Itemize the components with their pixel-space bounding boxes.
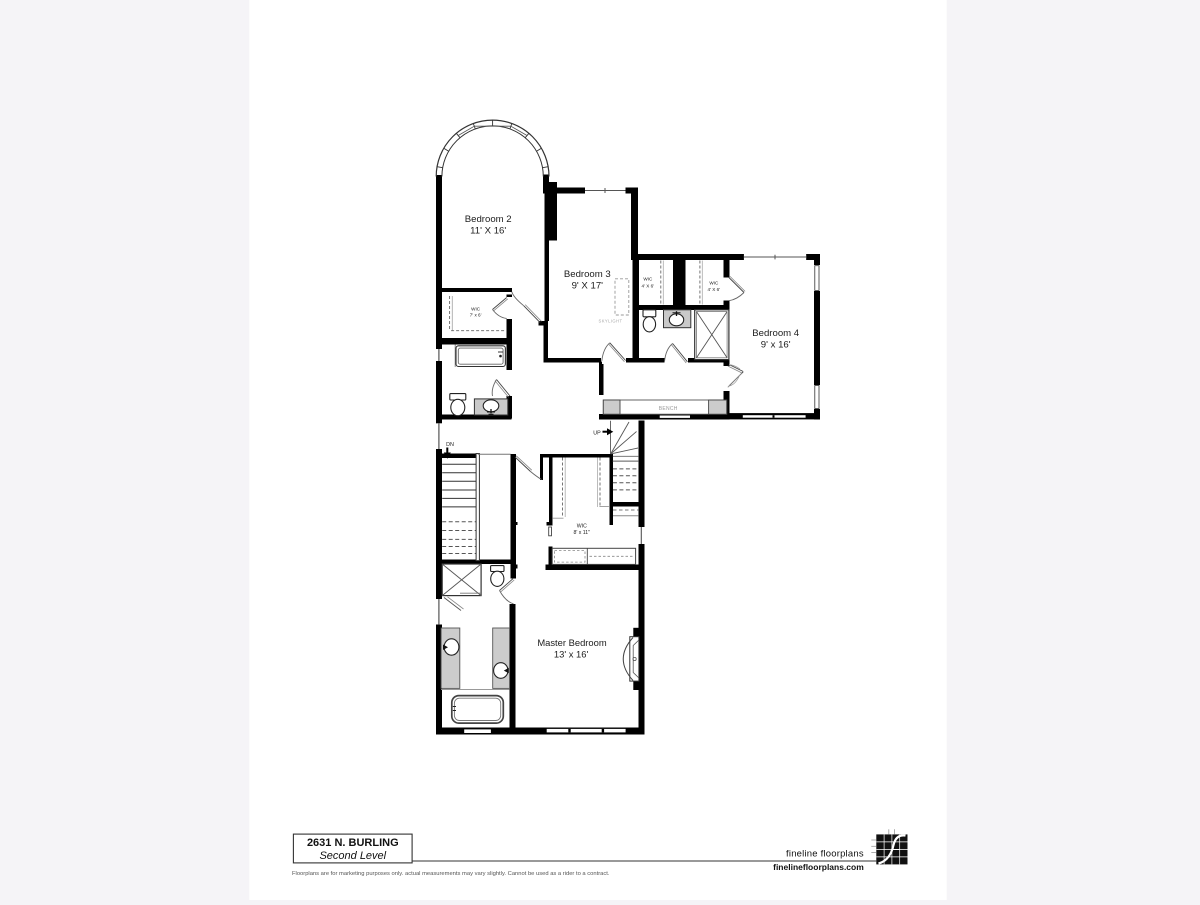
svg-text:11' X 16': 11' X 16'	[470, 225, 506, 236]
svg-text:UP: UP	[593, 430, 601, 436]
svg-text:4' X 6': 4' X 6'	[708, 287, 721, 292]
svg-text:SKYLIGHT: SKYLIGHT	[599, 319, 623, 324]
svg-text:WIC: WIC	[709, 280, 719, 285]
svg-text:9' X 17': 9' X 17'	[572, 280, 604, 291]
svg-text:Bedroom 3: Bedroom 3	[564, 269, 611, 280]
svg-text:Second Level: Second Level	[319, 850, 386, 862]
svg-text:WIC: WIC	[643, 277, 653, 282]
svg-text:WIC: WIC	[577, 524, 587, 530]
svg-text:8' x 11'': 8' x 11''	[573, 530, 590, 536]
svg-text:2631 N. BURLING: 2631 N. BURLING	[307, 837, 399, 849]
svg-text:WIC: WIC	[471, 306, 481, 311]
svg-text:Bedroom 2: Bedroom 2	[465, 214, 512, 225]
svg-text:7' x 6': 7' x 6'	[470, 312, 482, 317]
svg-text:fineline floorplans: fineline floorplans	[786, 849, 864, 860]
svg-text:13' x 16': 13' x 16'	[554, 649, 589, 660]
svg-text:finelinefloorplans.com: finelinefloorplans.com	[773, 862, 864, 872]
svg-text:Master Bedroom: Master Bedroom	[537, 637, 606, 648]
svg-text:4' X 6': 4' X 6'	[642, 284, 655, 289]
svg-text:Bedroom 4: Bedroom 4	[752, 328, 800, 339]
svg-text:9' x 16': 9' x 16'	[761, 339, 791, 350]
svg-text:BENCH: BENCH	[659, 406, 678, 412]
svg-text:DN: DN	[446, 442, 454, 448]
svg-text:Floorplans are for marketing p: Floorplans are for marketing purposes on…	[292, 871, 610, 877]
